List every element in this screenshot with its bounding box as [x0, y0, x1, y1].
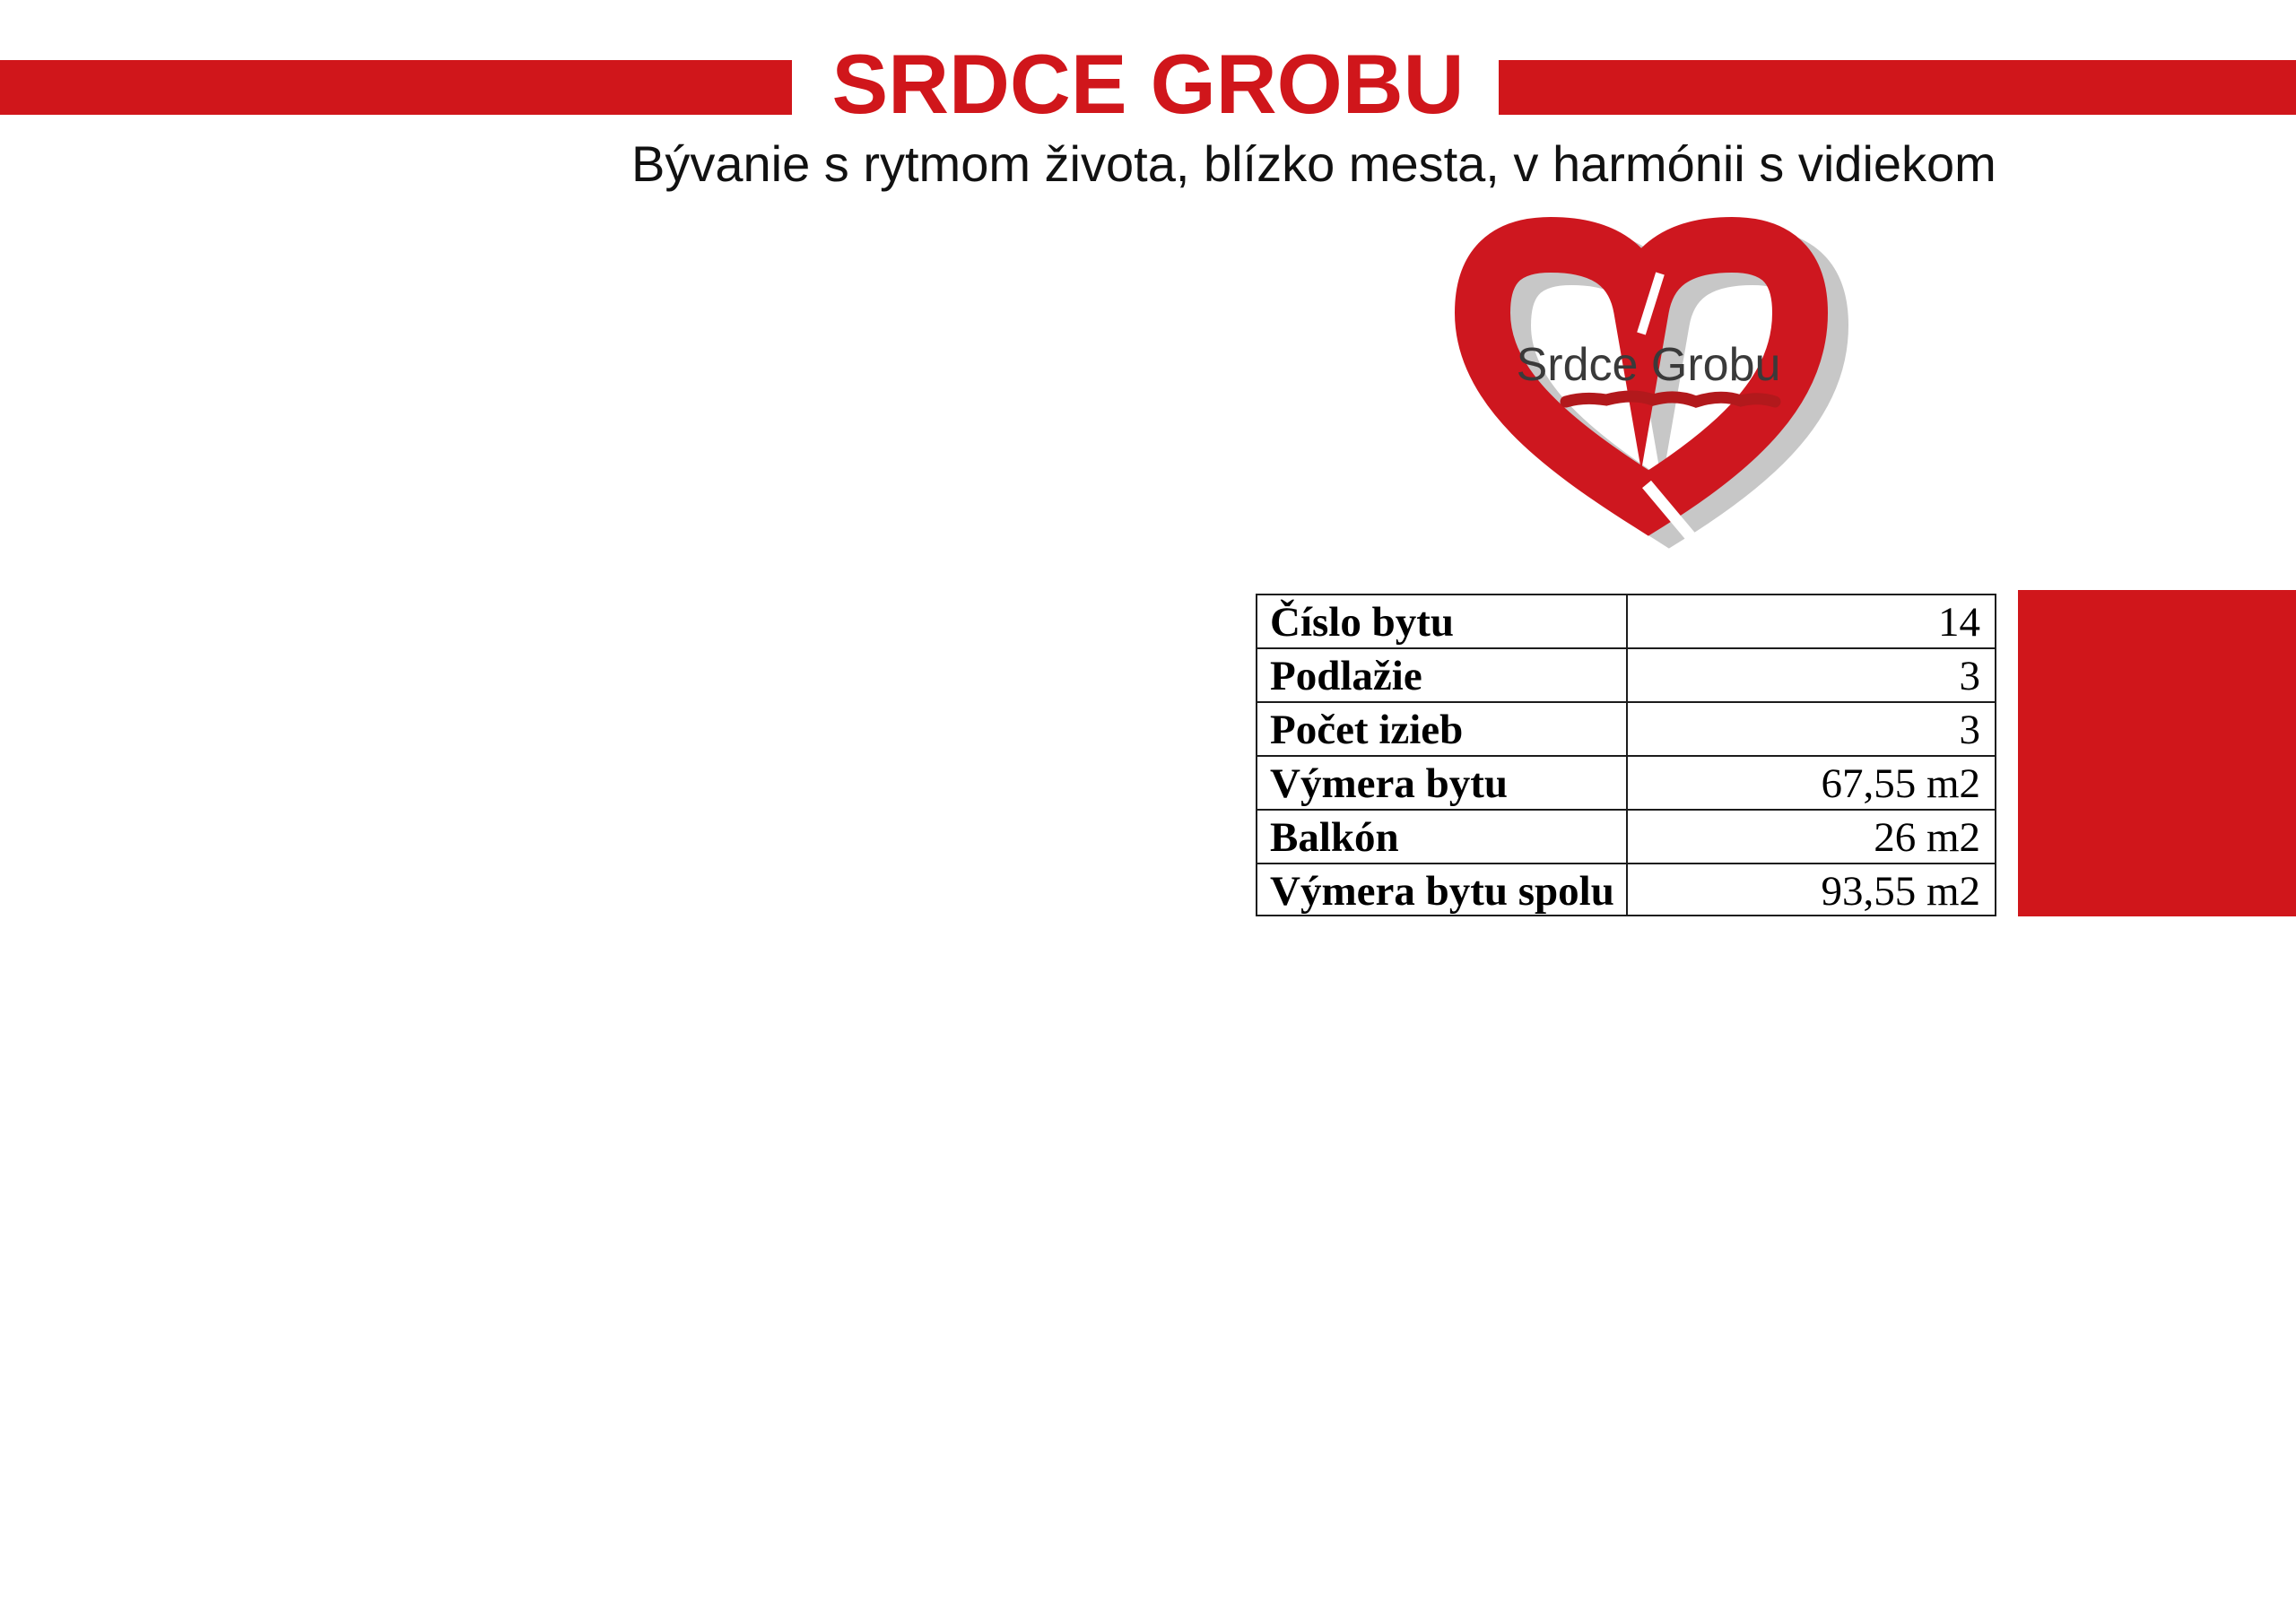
svg-text:Srdce Grobu: Srdce Grobu — [1517, 339, 1781, 391]
